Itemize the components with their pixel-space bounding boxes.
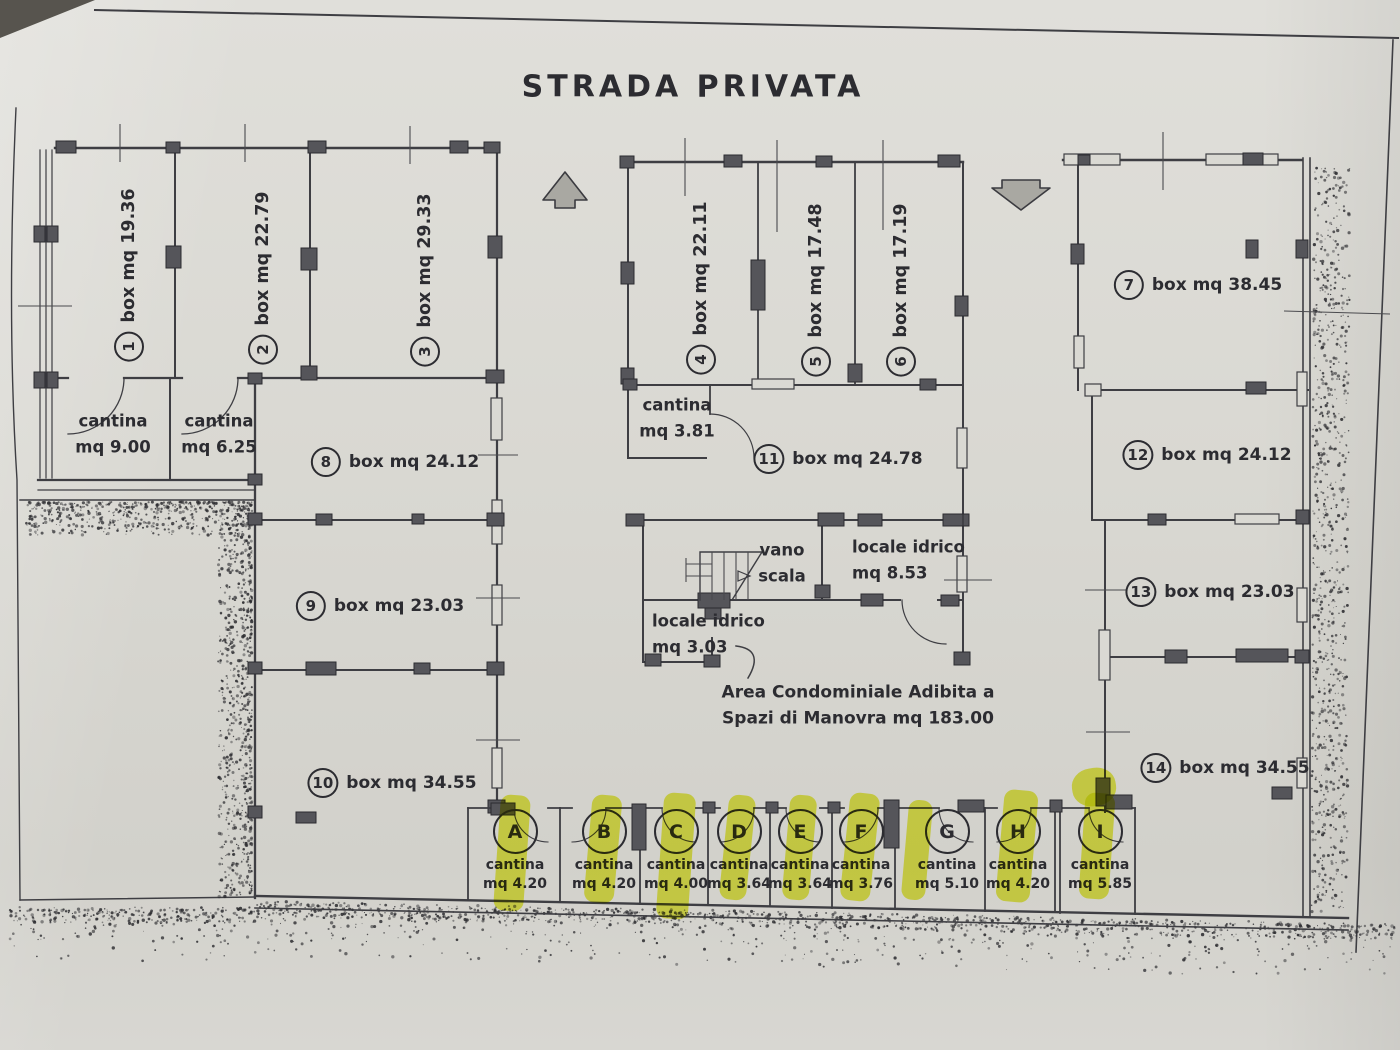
- cellar-letter-badge: B: [582, 809, 627, 854]
- box-14-label: 14 box mq 34.55: [1140, 753, 1309, 783]
- cellar-letter-badge: A: [493, 809, 538, 854]
- locale-idrico-853-label: locale idrico mq 8.53: [852, 534, 965, 585]
- photo-corner-shadow: [0, 0, 95, 38]
- box-3-label: 3 box mq 29.33: [410, 193, 440, 366]
- plan-title: STRADA PRIVATA: [522, 70, 865, 105]
- box-1-label: 1 box mq 19.36: [114, 188, 144, 361]
- cellar-letter-badge: H: [996, 809, 1041, 854]
- cellar-unit-h: H cantina mq 4.20: [982, 809, 1054, 895]
- area-condominiale-note: Area Condominiale Adibita a Spazi di Man…: [722, 680, 995, 733]
- cellar-unit-c: C cantina mq 4.00: [640, 809, 712, 895]
- box-10-number: 10: [307, 768, 338, 798]
- locale-idrico-303-label: locale idrico mq 3.03: [652, 608, 765, 659]
- box-4-number: 4: [686, 345, 716, 375]
- entrance-arrow-down-icon: [992, 180, 1050, 210]
- cantina-9-label: cantina mq 9.00: [75, 408, 150, 459]
- cellar-letter-badge: F: [839, 809, 884, 854]
- cellar-letter-badge: I: [1078, 809, 1123, 854]
- box-5-number: 5: [801, 347, 831, 377]
- box-6-number: 6: [886, 347, 916, 377]
- box-4-label: 4 box mq 22.11: [686, 201, 716, 374]
- cellar-letter-badge: C: [654, 809, 699, 854]
- box-12-label: 12 box mq 24.12: [1122, 440, 1291, 470]
- box-8-label: 8 box mq 24.12: [311, 447, 479, 477]
- box-2-number: 2: [248, 335, 278, 365]
- box-2-label: 2 box mq 22.79: [248, 191, 278, 364]
- box-7-label: 7 box mq 38.45: [1114, 270, 1282, 300]
- box-12-number: 12: [1122, 440, 1153, 470]
- box-8-number: 8: [311, 447, 341, 477]
- box-11-number: 11: [753, 444, 784, 474]
- entrance-arrow-up-icon: [543, 172, 587, 208]
- box-5-label: 5 box mq 17.48: [801, 203, 831, 376]
- box-6-label: 6 box mq 17.19: [886, 203, 916, 376]
- cellar-unit-i: I cantina mq 5.85: [1064, 809, 1136, 895]
- box-13-number: 13: [1125, 577, 1156, 607]
- box-9-number: 9: [296, 591, 326, 621]
- cellar-unit-a: A cantina mq 4.20: [479, 809, 551, 895]
- box-13-label: 13 box mq 23.03: [1125, 577, 1294, 607]
- cantina-381-label: cantina mq 3.81: [639, 392, 714, 443]
- box-3-number: 3: [410, 337, 440, 367]
- vano-scala-label: vano scala: [758, 537, 806, 588]
- box-14-number: 14: [1140, 753, 1171, 783]
- box-11-label: 11 box mq 24.78: [753, 444, 922, 474]
- cellar-letter-badge: E: [778, 809, 823, 854]
- cellar-unit-b: B cantina mq 4.20: [568, 809, 640, 895]
- floorplan-photo: STRADA PRIVATA 1 box mq 19.36 2 box mq 2…: [0, 0, 1400, 1050]
- cantina-6-label: cantina mq 6.25: [181, 408, 256, 459]
- cellar-letter-badge: G: [925, 809, 970, 854]
- box-7-number: 7: [1114, 270, 1144, 300]
- box-1-number: 1: [114, 332, 144, 362]
- right-wing-walls: [1063, 153, 1310, 917]
- staircase: [686, 552, 762, 600]
- box-10-label: 10 box mq 34.55: [307, 768, 476, 798]
- cellar-unit-f: F cantina mq 3.76: [825, 809, 897, 895]
- cellar-unit-g: G cantina mq 5.10: [911, 809, 983, 895]
- box-9-label: 9 box mq 23.03: [296, 591, 464, 621]
- cellar-letter-badge: D: [717, 809, 762, 854]
